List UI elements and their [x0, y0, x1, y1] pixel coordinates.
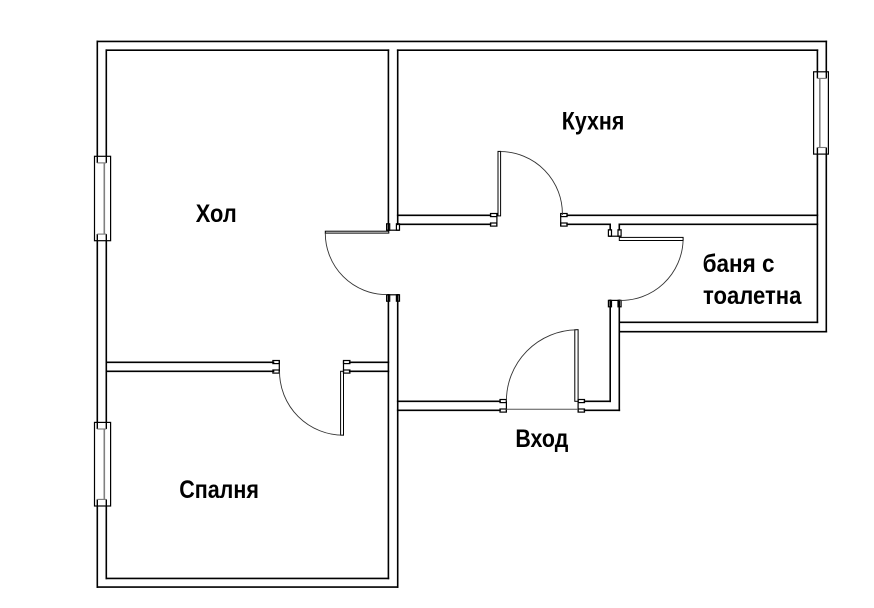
svg-text:тоалетна: тоалетна — [703, 282, 802, 310]
svg-text:Вход: Вход — [515, 425, 568, 453]
svg-text:баня с: баня с — [703, 250, 775, 278]
svg-text:Спалня: Спалня — [179, 476, 259, 504]
svg-text:Кухня: Кухня — [562, 107, 625, 135]
svg-text:Хол: Хол — [196, 200, 237, 228]
